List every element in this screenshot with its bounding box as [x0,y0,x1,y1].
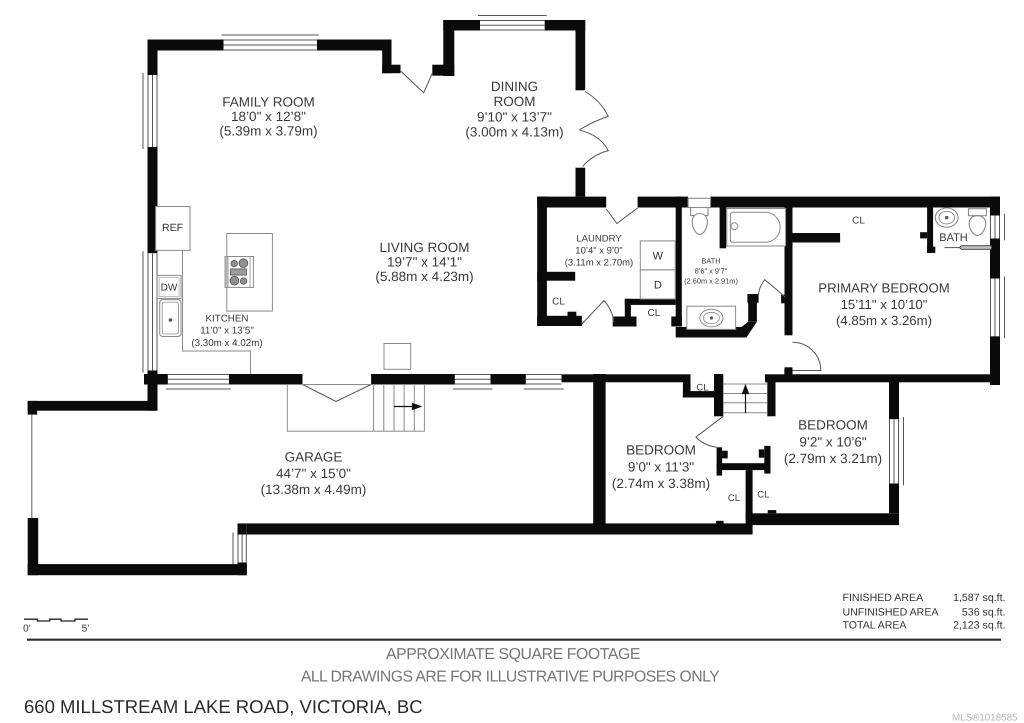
svg-text:(3.30m x 4.02m): (3.30m x 4.02m) [191,338,262,349]
svg-text:1,587 sq.ft.: 1,587 sq.ft. [953,592,1005,604]
svg-text:ALL DRAWINGS ARE FOR ILLUSTRAT: ALL DRAWINGS ARE FOR ILLUSTRATIVE PURPOS… [301,669,720,686]
svg-text:CL: CL [757,490,769,501]
svg-text:18’0" x 12’8": 18’0" x 12’8" [231,109,306,124]
svg-text:FINISHED AREA: FINISHED AREA [843,592,925,604]
svg-text:FAMILY ROOM: FAMILY ROOM [222,95,315,110]
svg-text:(2.79m x 3.21m): (2.79m x 3.21m) [784,451,882,466]
svg-text:19’7" x 14’1": 19’7" x 14’1" [387,255,462,270]
svg-text:BATH: BATH [939,232,968,244]
svg-text:(3.11m x 2.70m): (3.11m x 2.70m) [565,258,633,269]
svg-text:DW: DW [161,283,178,294]
svg-text:CL: CL [552,297,565,308]
svg-text:(3.00m x 4.13m): (3.00m x 4.13m) [465,125,563,140]
svg-text:(2.74m x 3.38m): (2.74m x 3.38m) [612,476,710,491]
svg-text:UNFINISHED AREA: UNFINISHED AREA [843,606,940,618]
svg-text:15’11" x 10’10": 15’11" x 10’10" [841,297,928,312]
svg-text:2,123 sq.ft.: 2,123 sq.ft. [953,620,1005,632]
svg-text:APPROXIMATE SQUARE FOOTAGE: APPROXIMATE SQUARE FOOTAGE [386,646,640,663]
svg-text:(13.38m x 4.49m): (13.38m x 4.49m) [261,482,367,497]
svg-text:MLS®1018585: MLS®1018585 [952,713,1018,723]
svg-text:LAUNDRY: LAUNDRY [576,234,622,245]
svg-text:CL: CL [728,493,740,504]
svg-text:(5.88m x 4.23m): (5.88m x 4.23m) [375,269,473,284]
svg-text:BEDROOM: BEDROOM [798,418,868,433]
svg-text:(5.39m x 3.79m): (5.39m x 3.79m) [219,124,317,139]
svg-text:0’: 0’ [23,624,31,635]
svg-text:ROOM: ROOM [494,94,536,109]
svg-text:5’: 5’ [82,624,90,635]
svg-text:KITCHEN: KITCHEN [205,314,248,325]
svg-text:CL: CL [696,383,708,394]
svg-text:9’10" x 13’7": 9’10" x 13’7" [477,109,552,124]
svg-text:660 MILLSTREAM LAKE ROAD, VICT: 660 MILLSTREAM LAKE ROAD, VICTORIA, BC [24,696,423,717]
svg-text:PRIMARY BEDROOM: PRIMARY BEDROOM [818,281,949,296]
svg-text:BEDROOM: BEDROOM [626,443,696,458]
svg-text:536 sq.ft.: 536 sq.ft. [962,606,1006,618]
svg-text:11’0" x 13’5": 11’0" x 13’5" [200,326,254,337]
svg-text:10’4" x 9’0": 10’4" x 9’0" [575,246,622,257]
svg-text:9’0" x 11’3": 9’0" x 11’3" [628,459,695,474]
svg-text:DINING: DINING [491,79,538,94]
svg-text:(2.60m x 2.91m): (2.60m x 2.91m) [684,277,738,286]
svg-text:W: W [653,251,664,263]
svg-text:8’6" x 9’7": 8’6" x 9’7" [695,267,728,276]
svg-text:(4.85m x 3.26m): (4.85m x 3.26m) [836,313,932,328]
svg-text:REF: REF [162,222,183,234]
svg-text:CL: CL [648,308,661,319]
svg-text:D: D [654,280,662,292]
svg-text:CL: CL [852,216,865,227]
svg-text:TOTAL AREA: TOTAL AREA [843,620,908,632]
svg-text:LIVING ROOM: LIVING ROOM [379,240,469,255]
svg-text:44’7" x 15’0": 44’7" x 15’0" [276,466,351,481]
svg-text:GARAGE: GARAGE [285,450,343,465]
svg-text:BATH: BATH [701,257,720,266]
svg-text:9’2" x 10’6": 9’2" x 10’6" [799,434,867,449]
